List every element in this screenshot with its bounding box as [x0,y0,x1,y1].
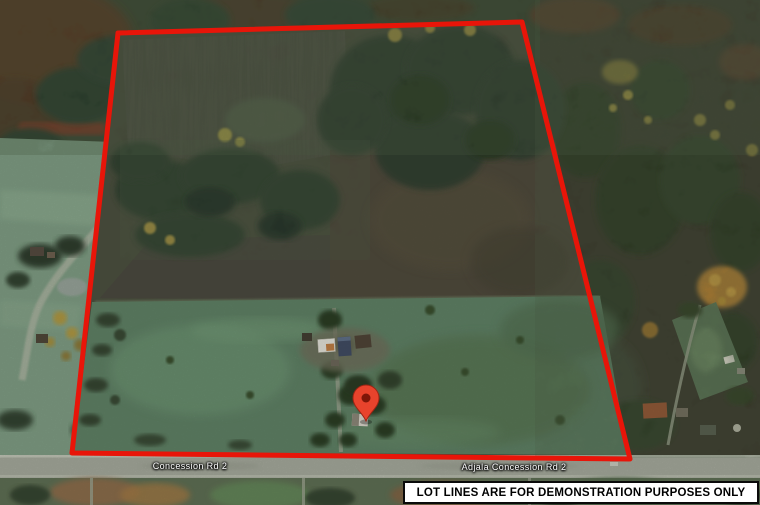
road-label-concession-rd-2: Concession Rd 2 [153,461,228,471]
disclaimer-banner: LOT LINES ARE FOR DEMONSTRATION PURPOSES… [403,481,759,504]
satellite-imagery [0,0,760,505]
pin-dot [362,394,371,403]
road-label-adjala-concession-rd-2: Adjala Concession Rd 2 [462,462,567,472]
map-screenshot: Concession Rd 2 Adjala Concession Rd 2 L… [0,0,760,505]
